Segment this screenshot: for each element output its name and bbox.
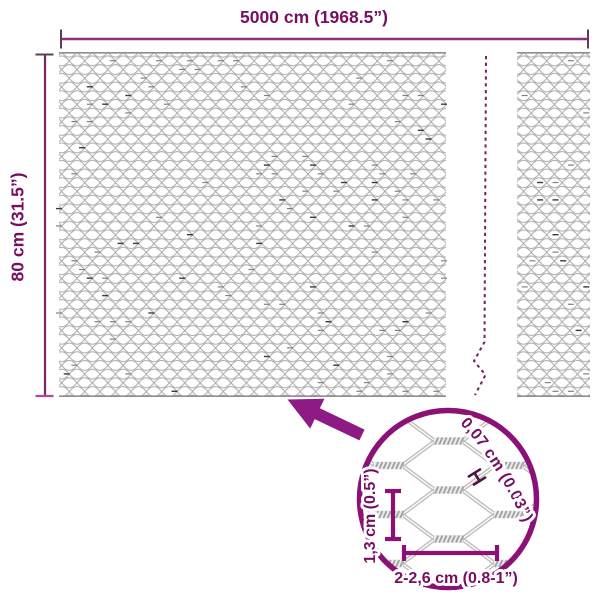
svg-text:80 cm (31.5”): 80 cm (31.5”) [8, 173, 28, 282]
svg-text:2-2,6 cm (0.8-1”): 2-2,6 cm (0.8-1”) [394, 570, 518, 587]
svg-text:5000 cm (1968.5”): 5000 cm (1968.5”) [240, 7, 388, 27]
svg-text:1,3 cm (0.5”): 1,3 cm (0.5”) [362, 468, 379, 563]
